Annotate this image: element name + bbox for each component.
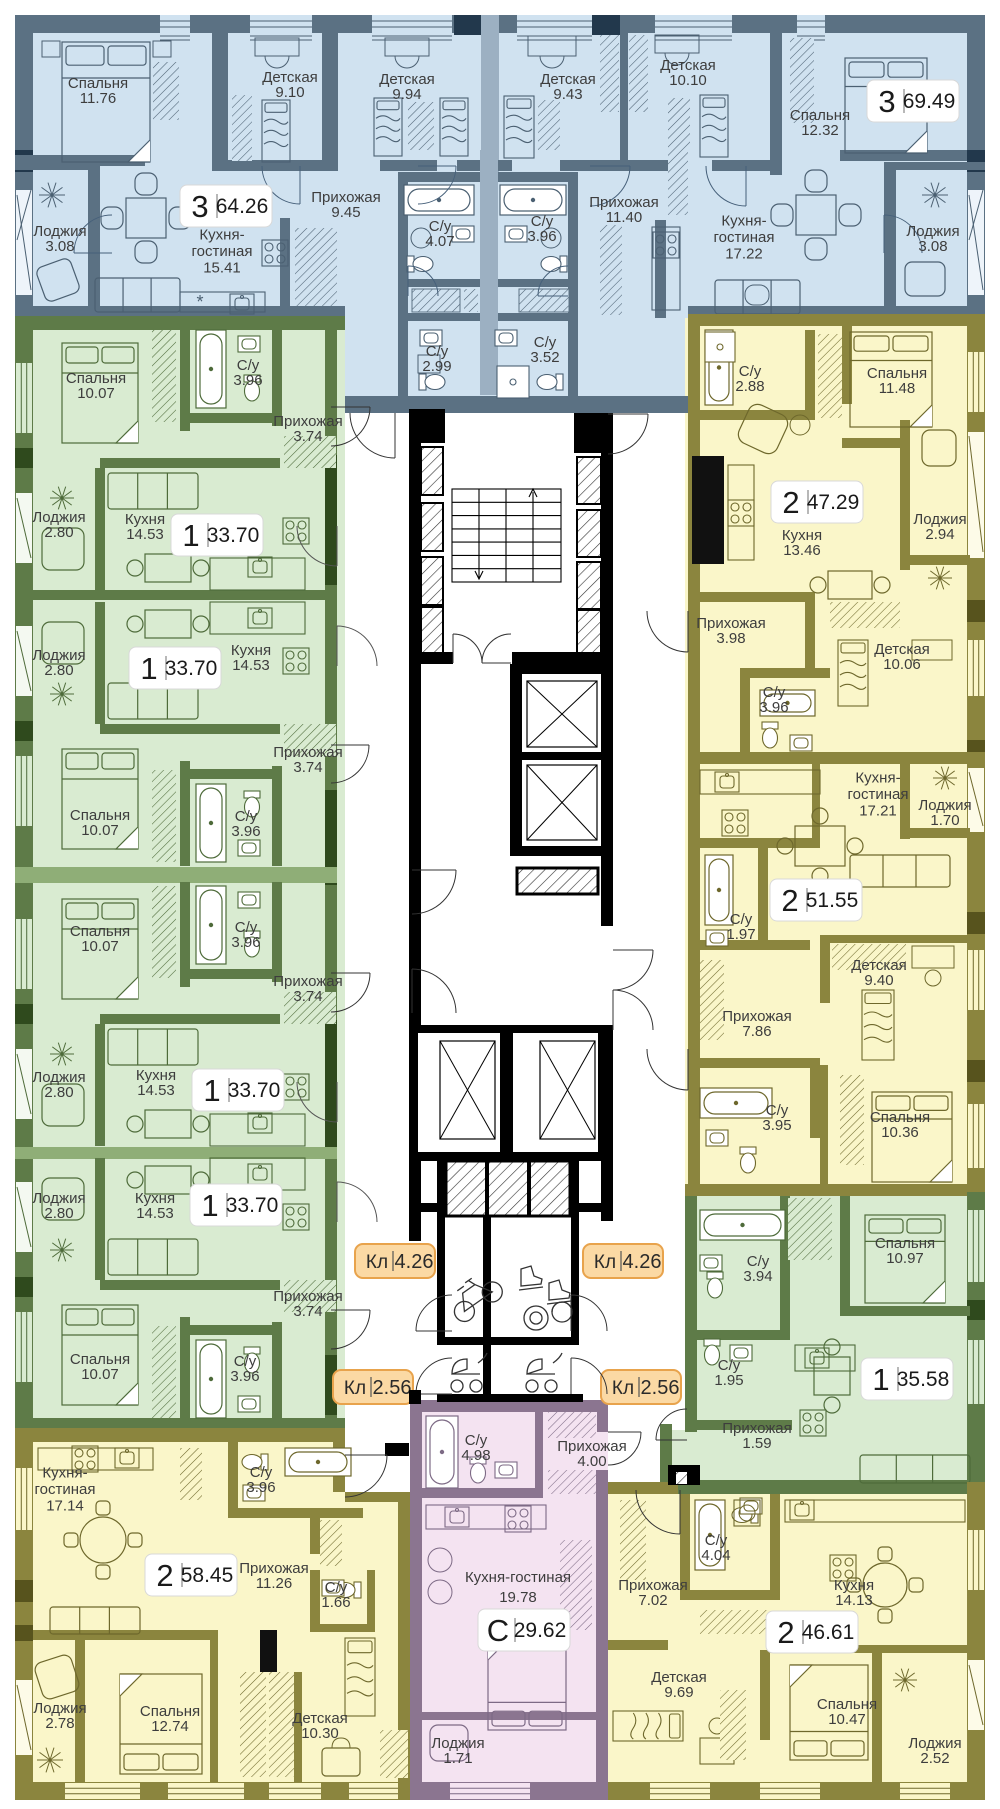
svg-text:Кухня-: Кухня- — [855, 769, 900, 786]
svg-text:4.26: 4.26 — [395, 1251, 434, 1273]
svg-text:Кухня-: Кухня- — [721, 212, 766, 229]
svg-text:гостиная: гостиная — [848, 786, 909, 803]
svg-text:13.46: 13.46 — [783, 542, 821, 559]
svg-text:17.22: 17.22 — [725, 245, 763, 262]
svg-text:*: * — [196, 292, 203, 312]
svg-text:2.80: 2.80 — [44, 1205, 73, 1222]
svg-text:17.21: 17.21 — [859, 802, 897, 819]
svg-text:С: С — [487, 1613, 509, 1648]
svg-text:2.56: 2.56 — [373, 1377, 412, 1399]
svg-text:10.47: 10.47 — [828, 1711, 866, 1728]
svg-text:Кухня-: Кухня- — [199, 226, 244, 243]
svg-text:3.96: 3.96 — [246, 1479, 275, 1496]
svg-text:11.26: 11.26 — [256, 1575, 292, 1592]
svg-text:33.70: 33.70 — [207, 524, 260, 547]
svg-text:58.45: 58.45 — [181, 1564, 234, 1587]
svg-text:Кл: Кл — [344, 1378, 366, 1399]
svg-text:12.32: 12.32 — [801, 122, 839, 139]
svg-text:3: 3 — [191, 189, 208, 224]
svg-text:Кухня-: Кухня- — [42, 1464, 87, 1481]
svg-text:33.70: 33.70 — [165, 657, 218, 680]
svg-text:1: 1 — [203, 1073, 220, 1108]
svg-text:10.07: 10.07 — [81, 822, 119, 839]
svg-text:Кл: Кл — [594, 1252, 616, 1273]
svg-text:11.76: 11.76 — [80, 90, 116, 107]
svg-text:29.62: 29.62 — [514, 1619, 567, 1642]
svg-text:3.96: 3.96 — [233, 372, 262, 389]
svg-text:1.70: 1.70 — [930, 812, 959, 829]
svg-text:3.96: 3.96 — [230, 1368, 259, 1385]
svg-text:12.74: 12.74 — [151, 1718, 189, 1735]
svg-text:3.74: 3.74 — [293, 988, 322, 1005]
svg-text:69.49: 69.49 — [903, 90, 956, 113]
svg-text:1: 1 — [201, 1188, 218, 1223]
svg-text:10.30: 10.30 — [301, 1725, 339, 1742]
svg-text:3.74: 3.74 — [293, 1303, 322, 1320]
svg-text:3.96: 3.96 — [231, 934, 260, 951]
svg-text:4.26: 4.26 — [623, 1251, 662, 1273]
svg-text:1.66: 1.66 — [321, 1594, 350, 1611]
svg-text:Кл: Кл — [612, 1378, 634, 1399]
svg-text:1.97: 1.97 — [726, 926, 755, 943]
svg-text:1.95: 1.95 — [714, 1372, 743, 1389]
svg-text:3.74: 3.74 — [293, 428, 322, 445]
svg-text:3.96: 3.96 — [527, 228, 556, 245]
svg-text:2: 2 — [156, 1558, 173, 1593]
svg-text:4.04: 4.04 — [701, 1547, 730, 1564]
svg-text:2.78: 2.78 — [45, 1715, 74, 1732]
svg-text:3.98: 3.98 — [716, 630, 745, 647]
svg-text:9.40: 9.40 — [864, 972, 893, 989]
svg-text:2.99: 2.99 — [422, 358, 451, 375]
svg-text:3.94: 3.94 — [743, 1268, 772, 1285]
svg-text:10.36: 10.36 — [881, 1124, 919, 1141]
svg-text:2.80: 2.80 — [44, 1084, 73, 1101]
svg-text:3.96: 3.96 — [759, 699, 788, 716]
svg-text:2.80: 2.80 — [44, 662, 73, 679]
svg-text:14.53: 14.53 — [136, 1205, 174, 1222]
svg-text:2.94: 2.94 — [925, 526, 954, 543]
svg-text:2: 2 — [777, 1615, 794, 1650]
svg-text:1.71: 1.71 — [443, 1750, 472, 1767]
svg-text:33.70: 33.70 — [226, 1194, 279, 1217]
svg-text:17.14: 17.14 — [46, 1497, 84, 1514]
svg-text:14.13: 14.13 — [835, 1592, 873, 1609]
svg-text:гостиная: гостиная — [35, 1481, 96, 1498]
svg-text:Кл: Кл — [366, 1252, 388, 1273]
svg-text:11.48: 11.48 — [879, 380, 915, 397]
svg-text:10.97: 10.97 — [886, 1250, 924, 1267]
svg-text:1: 1 — [140, 651, 157, 686]
svg-text:3.08: 3.08 — [918, 238, 947, 255]
svg-text:3.08: 3.08 — [45, 238, 74, 255]
svg-text:64.26: 64.26 — [216, 195, 269, 218]
svg-text:1: 1 — [182, 518, 199, 553]
svg-text:14.53: 14.53 — [137, 1082, 175, 1099]
svg-text:7.86: 7.86 — [742, 1023, 771, 1040]
svg-text:4.07: 4.07 — [425, 233, 454, 250]
svg-text:гостиная: гостиная — [192, 243, 253, 260]
svg-text:3: 3 — [878, 84, 895, 119]
svg-text:46.61: 46.61 — [802, 1621, 855, 1644]
svg-text:1: 1 — [872, 1362, 889, 1397]
svg-text:3.95: 3.95 — [762, 1117, 791, 1134]
svg-text:47.29: 47.29 — [807, 491, 860, 514]
svg-text:10.06: 10.06 — [883, 656, 921, 673]
svg-text:гостиная: гостиная — [714, 229, 775, 246]
svg-text:9.45: 9.45 — [331, 204, 360, 221]
svg-text:10.07: 10.07 — [81, 938, 119, 955]
svg-text:14.53: 14.53 — [232, 657, 270, 674]
svg-text:10.07: 10.07 — [77, 385, 115, 402]
svg-text:10.07: 10.07 — [81, 1366, 119, 1383]
svg-text:2.80: 2.80 — [44, 524, 73, 541]
svg-text:9.69: 9.69 — [664, 1684, 693, 1701]
svg-text:9.43: 9.43 — [553, 86, 582, 103]
svg-text:4.00: 4.00 — [577, 1453, 606, 1470]
svg-text:11.40: 11.40 — [606, 209, 642, 226]
svg-text:35.58: 35.58 — [897, 1368, 950, 1391]
svg-text:14.53: 14.53 — [126, 526, 164, 543]
svg-text:33.70: 33.70 — [228, 1079, 281, 1102]
svg-text:51.55: 51.55 — [806, 889, 859, 912]
svg-text:10.10: 10.10 — [669, 72, 707, 89]
svg-text:9.10: 9.10 — [275, 84, 304, 101]
svg-text:15.41: 15.41 — [203, 259, 241, 276]
svg-text:2: 2 — [782, 485, 799, 520]
svg-text:19.78: 19.78 — [499, 1589, 537, 1606]
svg-text:2.52: 2.52 — [920, 1750, 949, 1767]
svg-text:1.59: 1.59 — [742, 1435, 771, 1452]
svg-text:4.98: 4.98 — [461, 1447, 490, 1464]
svg-text:9.94: 9.94 — [392, 86, 421, 103]
svg-text:Кухня-гостиная: Кухня-гостиная — [465, 1569, 571, 1586]
svg-text:2.56: 2.56 — [641, 1377, 680, 1399]
svg-text:3.52: 3.52 — [530, 349, 559, 366]
svg-text:3.96: 3.96 — [231, 823, 260, 840]
svg-text:7.02: 7.02 — [638, 1592, 667, 1609]
svg-text:2.88: 2.88 — [735, 378, 764, 395]
svg-text:3.74: 3.74 — [293, 759, 322, 776]
svg-text:2: 2 — [781, 883, 798, 918]
